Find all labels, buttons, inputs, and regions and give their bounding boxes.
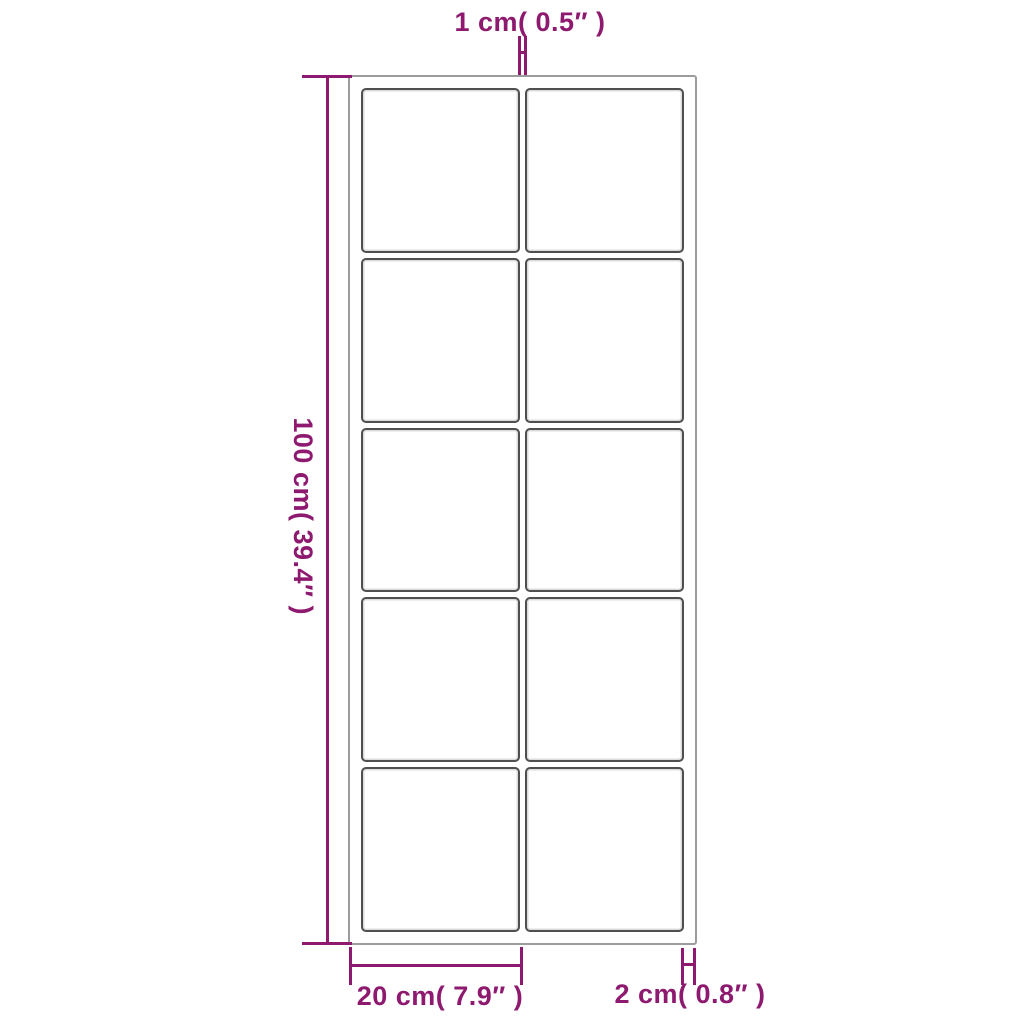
dim-right-label: 2 cm( 0.8″ ) (575, 980, 805, 1008)
window-pane (525, 767, 684, 932)
window-pane (525, 428, 684, 593)
window-pane (361, 258, 520, 423)
dim-top-crossbar (518, 51, 527, 54)
dim-left-tick-top (302, 75, 352, 78)
window-pane (525, 597, 684, 762)
dim-bottom-dimension-line (350, 964, 523, 967)
product-frame (348, 75, 697, 945)
product-dimension-diagram: 1 cm( 0.5″ ) 100 cm( 39.4″ ) 20 cm( 7.9″… (0, 0, 1024, 1024)
dim-bottom-tick-right (520, 947, 523, 985)
window-pane (361, 428, 520, 593)
window-pane (525, 88, 684, 253)
dim-top-extension-line-left (518, 36, 521, 75)
window-pane (361, 597, 520, 762)
dim-right-crossbar (681, 963, 696, 966)
window-pane (361, 767, 520, 932)
dim-bottom-tick-left (349, 947, 352, 985)
dim-bottom-label: 20 cm( 7.9″ ) (330, 982, 550, 1010)
dim-left-dimension-line (326, 76, 329, 944)
window-pane (361, 88, 520, 253)
dim-top-extension-line-right (524, 36, 527, 75)
window-pane (525, 258, 684, 423)
dim-left-label: 100 cm( 39.4″ ) (289, 386, 317, 646)
dim-left-tick-bottom (302, 942, 352, 945)
dim-top-label: 1 cm( 0.5″ ) (430, 8, 630, 36)
